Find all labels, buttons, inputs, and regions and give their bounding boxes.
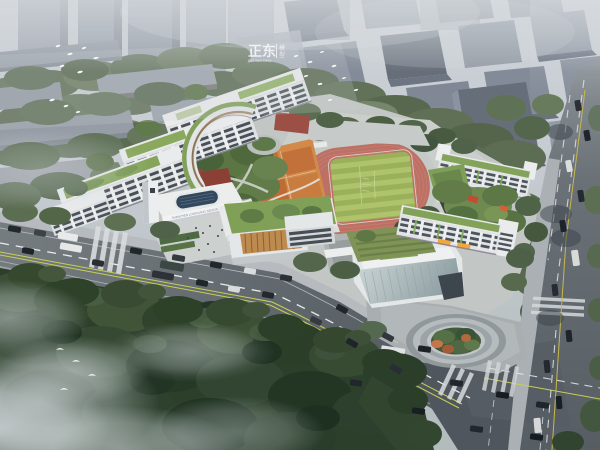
svg-text:正东: 正东 (248, 43, 276, 59)
svg-text:模: 模 (279, 44, 285, 52)
svg-text:EST BUILDING: EST BUILDING (248, 59, 272, 63)
svg-text:型: 型 (279, 51, 285, 59)
